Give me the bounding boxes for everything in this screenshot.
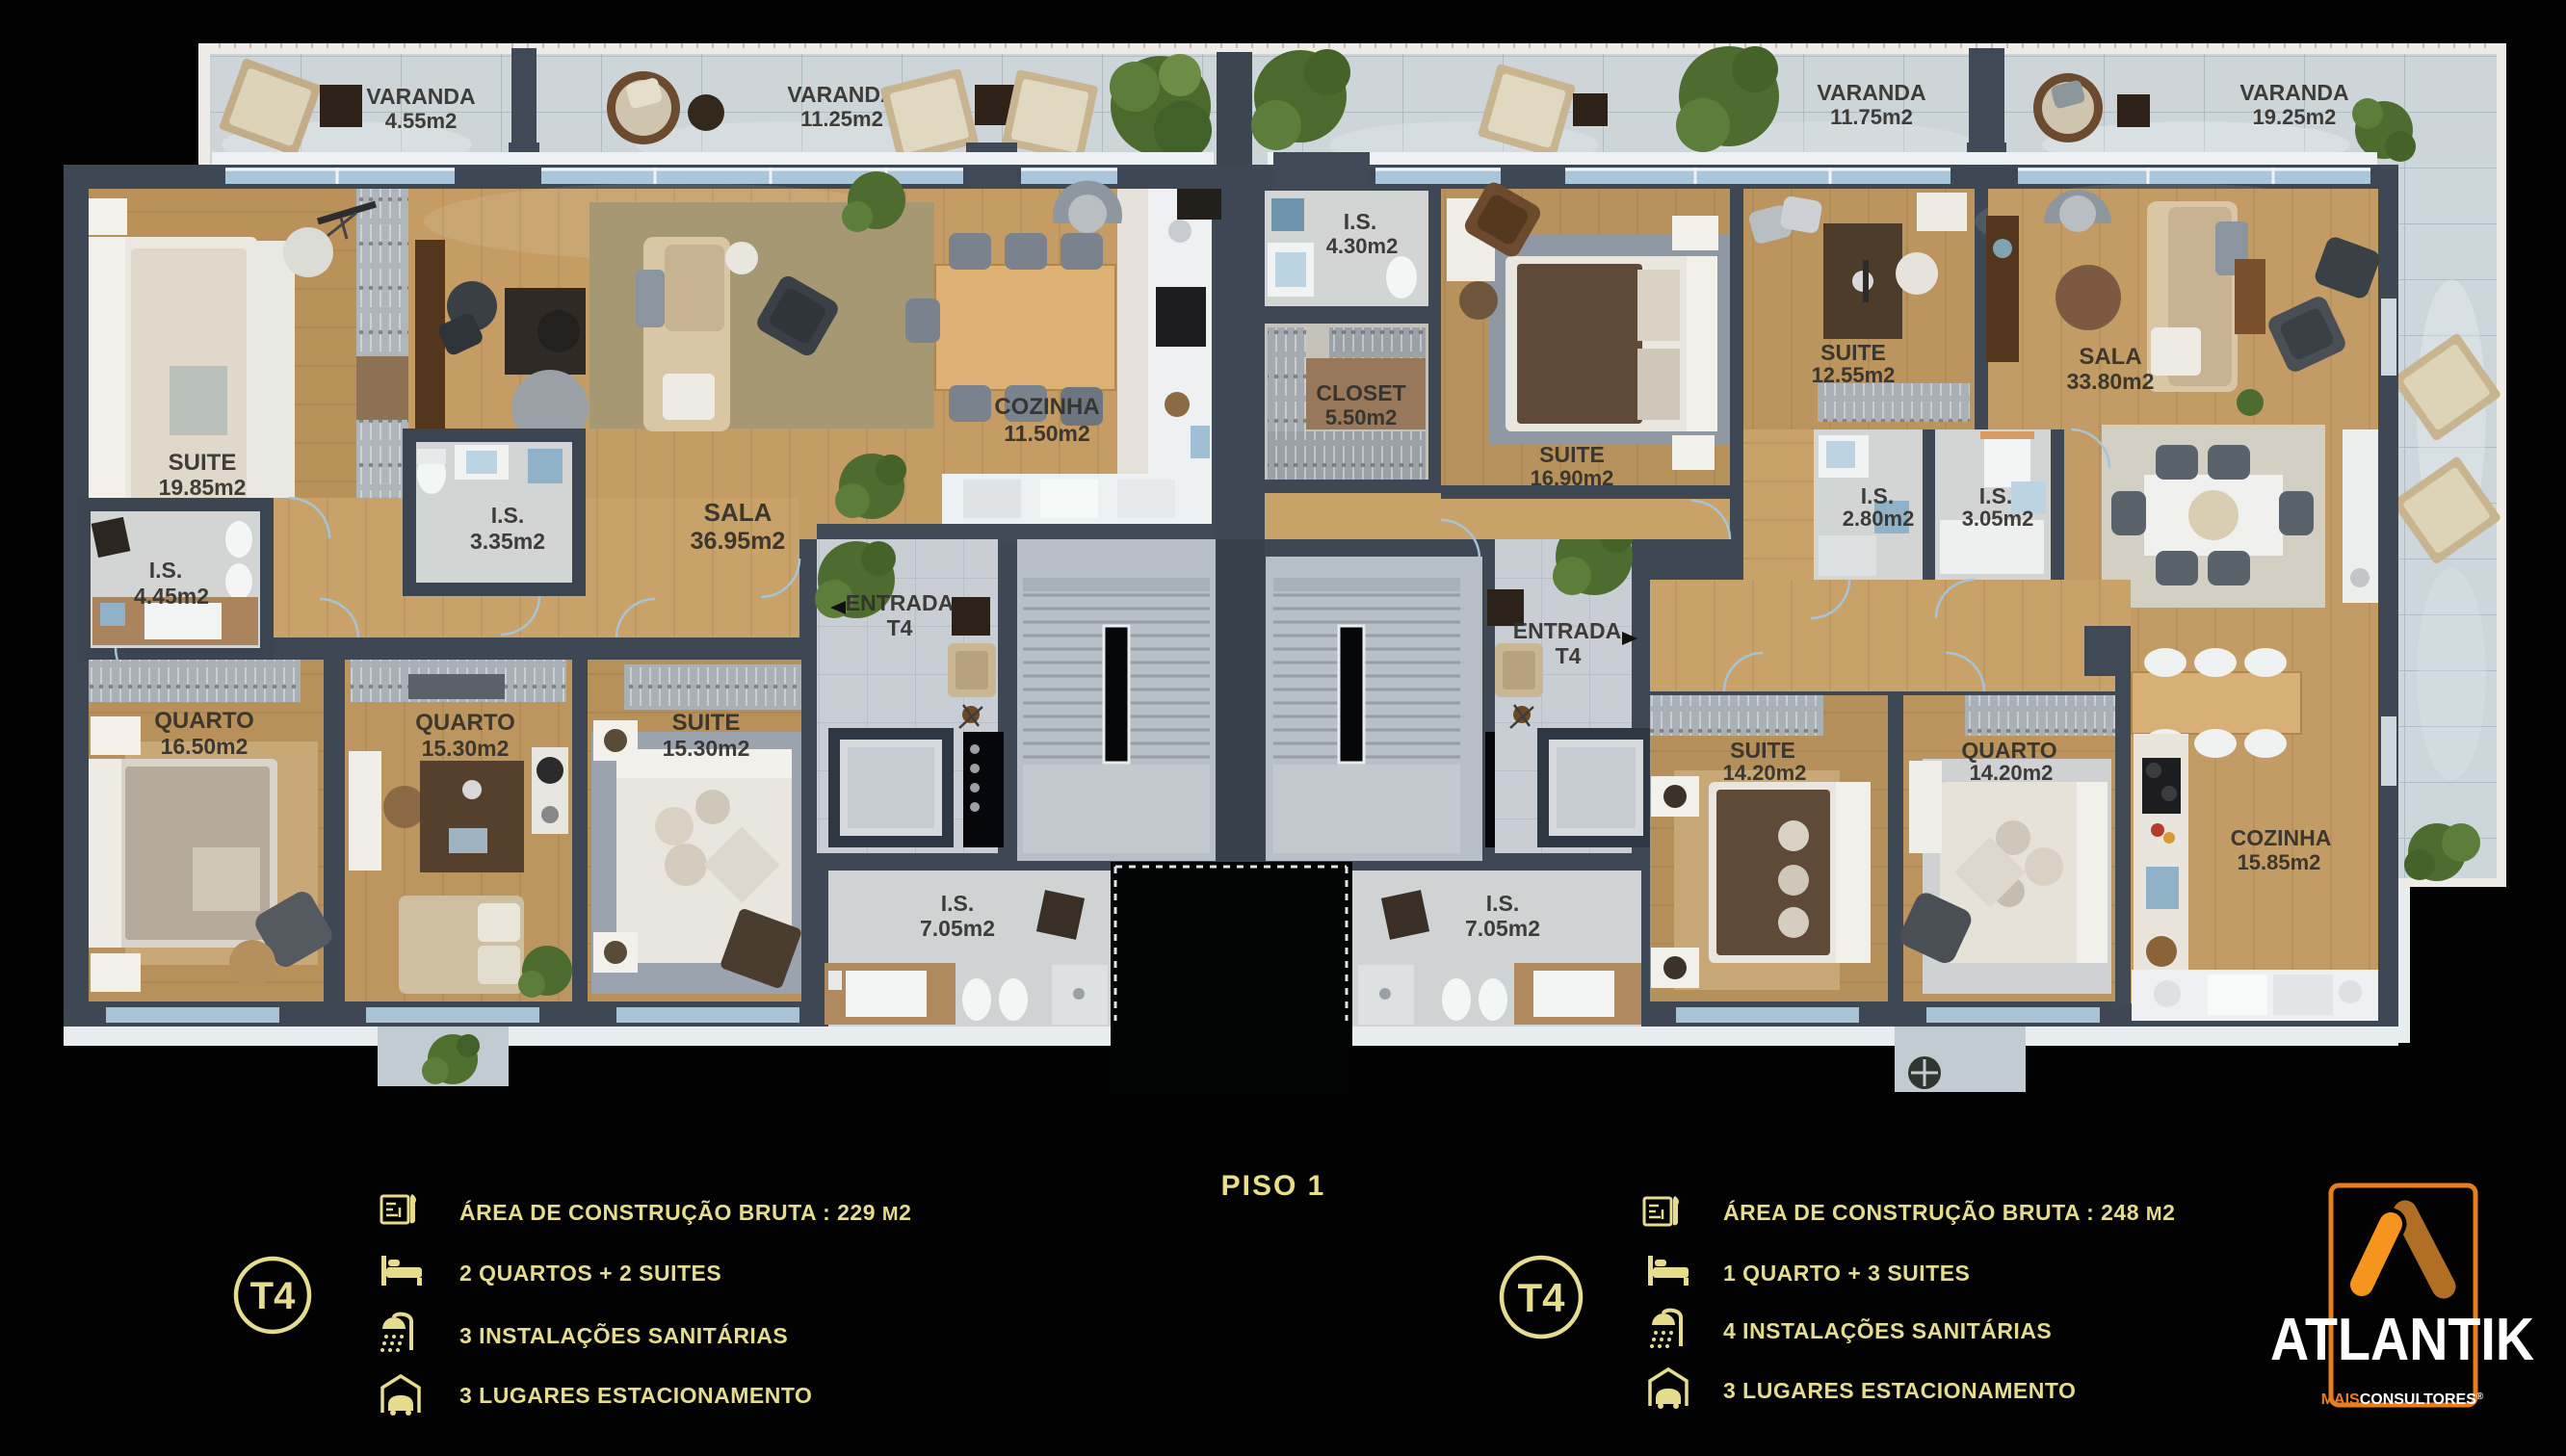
svg-text:I.S.: I.S. [149, 558, 183, 583]
svg-text:14.20m2: 14.20m2 [1723, 761, 1807, 785]
svg-text:4.30m2: 4.30m2 [1326, 234, 1399, 258]
svg-text:3 LUGARES ESTACIONAMENTO: 3 LUGARES ESTACIONAMENTO [459, 1383, 812, 1408]
svg-text:3 INSTALAÇÕES SANITÁRIAS: 3 INSTALAÇÕES SANITÁRIAS [459, 1322, 788, 1348]
svg-text:2 QUARTOS + 2 SUITES: 2 QUARTOS + 2 SUITES [459, 1261, 721, 1286]
svg-text:36.95m2: 36.95m2 [691, 528, 786, 555]
svg-text:11.50m2: 11.50m2 [1004, 421, 1090, 446]
svg-text:4 INSTALAÇÕES SANITÁRIAS: 4 INSTALAÇÕES SANITÁRIAS [1723, 1317, 2052, 1343]
svg-text:QUARTO: QUARTO [415, 710, 515, 736]
svg-text:VARANDA: VARANDA [1817, 80, 1925, 105]
svg-text:PISO 1: PISO 1 [1221, 1170, 1326, 1202]
svg-text:19.85m2: 19.85m2 [159, 475, 247, 500]
svg-text:11.25m2: 11.25m2 [800, 107, 883, 131]
svg-text:ENTRADA: ENTRADA [846, 590, 954, 615]
svg-text:12.55m2: 12.55m2 [1812, 363, 1896, 387]
svg-text:MAISCONSULTORES®: MAISCONSULTORES® [2321, 1391, 2484, 1408]
svg-text:1 QUARTO + 3 SUITES: 1 QUARTO + 3 SUITES [1723, 1261, 1970, 1286]
svg-text:SALA: SALA [704, 498, 772, 527]
svg-text:VARANDA: VARANDA [2239, 80, 2348, 105]
svg-text:SUITE: SUITE [1820, 340, 1886, 365]
svg-text:5.50m2: 5.50m2 [1325, 405, 1398, 429]
svg-text:SUITE: SUITE [169, 450, 237, 476]
svg-text:I.S.: I.S. [1344, 209, 1377, 234]
svg-text:7.05m2: 7.05m2 [1465, 916, 1540, 941]
svg-text:2.80m2: 2.80m2 [1843, 507, 1915, 531]
svg-text:15.30m2: 15.30m2 [663, 736, 750, 761]
svg-text:SALA: SALA [2079, 344, 2141, 370]
svg-text:SUITE: SUITE [672, 710, 741, 736]
svg-text:16.50m2: 16.50m2 [161, 734, 249, 759]
svg-text:11.75m2: 11.75m2 [1830, 105, 1913, 129]
svg-text:I.S.: I.S. [491, 503, 525, 528]
svg-text:14.20m2: 14.20m2 [1970, 761, 2054, 785]
svg-text:4.55m2: 4.55m2 [385, 109, 458, 133]
svg-text:I.S.: I.S. [1979, 483, 2013, 508]
svg-text:19.25m2: 19.25m2 [2253, 105, 2337, 129]
svg-text:QUARTO: QUARTO [154, 708, 254, 734]
svg-text:15.30m2: 15.30m2 [422, 736, 510, 761]
svg-text:I.S.: I.S. [1861, 483, 1895, 508]
svg-text:15.85m2: 15.85m2 [2238, 850, 2321, 874]
svg-text:ÁREA DE CONSTRUÇÃO BRUTA : 22: ÁREA DE CONSTRUÇÃO BRUTA : 229 M2 [459, 1199, 911, 1225]
svg-text:33.80m2: 33.80m2 [2067, 369, 2155, 394]
svg-text:CLOSET: CLOSET [1316, 380, 1405, 405]
svg-text:3 LUGARES ESTACIONAMENTO: 3 LUGARES ESTACIONAMENTO [1723, 1378, 2076, 1403]
svg-text:I.S.: I.S. [941, 891, 975, 916]
svg-text:16.90m2: 16.90m2 [1531, 466, 1614, 490]
svg-text:7.05m2: 7.05m2 [920, 916, 995, 941]
svg-text:3.05m2: 3.05m2 [1962, 507, 2034, 531]
svg-text:T4: T4 [1517, 1275, 1565, 1320]
svg-text:4.45m2: 4.45m2 [134, 584, 209, 609]
svg-text:T4: T4 [887, 615, 913, 640]
svg-text:I.S.: I.S. [1486, 891, 1520, 916]
svg-text:ÁREA DE CONSTRUÇÃO BRUTA : 24: ÁREA DE CONSTRUÇÃO BRUTA : 248 M2 [1723, 1199, 2175, 1225]
svg-text:T4: T4 [1556, 643, 1582, 668]
svg-text:QUARTO: QUARTO [1961, 738, 2056, 763]
svg-text:ATLANTIK: ATLANTIK [2270, 1307, 2534, 1373]
svg-text:SUITE: SUITE [1539, 442, 1605, 467]
svg-text:SUITE: SUITE [1730, 738, 1795, 763]
svg-text:T4: T4 [250, 1275, 296, 1317]
svg-text:COZINHA: COZINHA [994, 394, 1099, 420]
svg-text:VARANDA: VARANDA [787, 82, 896, 107]
svg-text:COZINHA: COZINHA [2231, 825, 2332, 850]
svg-text:VARANDA: VARANDA [366, 84, 475, 109]
svg-text:3.35m2: 3.35m2 [470, 529, 545, 554]
svg-text:ENTRADA: ENTRADA [1513, 618, 1621, 643]
